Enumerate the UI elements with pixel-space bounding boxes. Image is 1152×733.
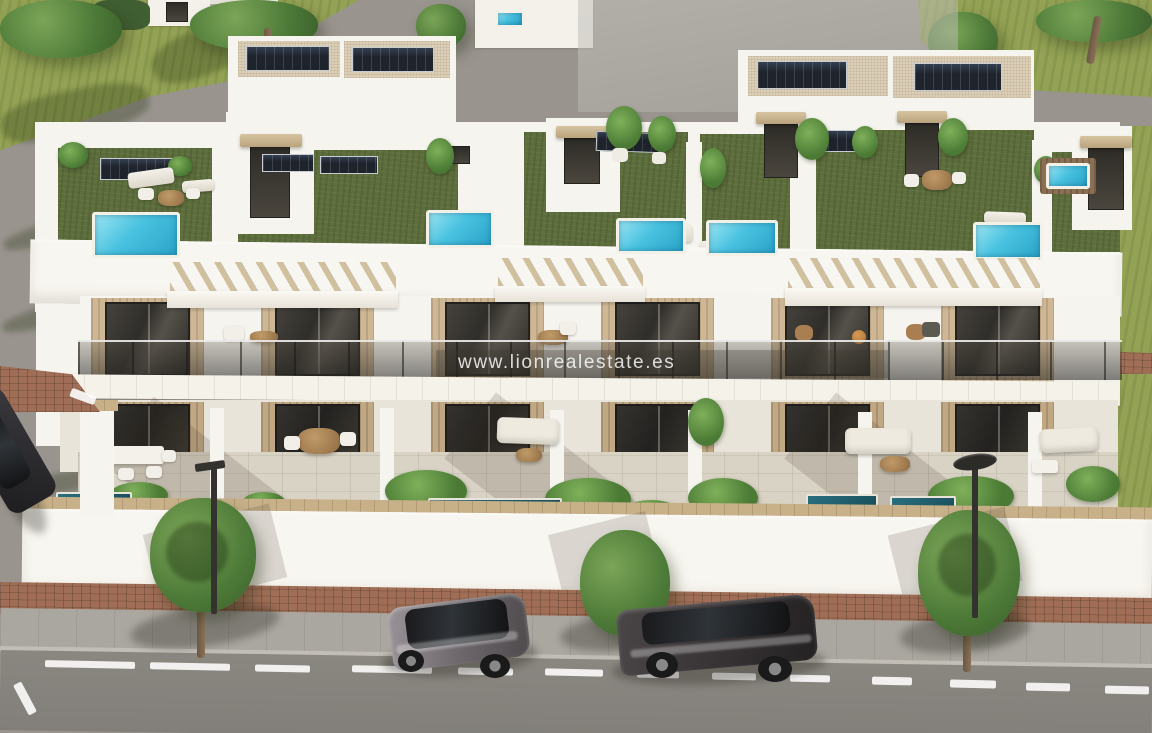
pergola-beam-1 [167, 291, 398, 308]
patio-chair-1 [284, 436, 300, 450]
plant-pot-2 [652, 152, 666, 164]
patio-sofa-2 [845, 428, 911, 454]
car-mid-wheel-1 [398, 650, 424, 672]
roof-plant-7 [795, 118, 829, 160]
patio-table-round [298, 428, 340, 454]
coffee-table-1 [516, 448, 542, 462]
plant-pot-1 [612, 148, 628, 162]
patio-sofa-3 [1039, 426, 1098, 453]
lane-dash-12 [1026, 683, 1070, 692]
solar-panel-a2 [352, 47, 434, 72]
roof-plant-3 [426, 138, 454, 174]
roof-plant-8 [852, 126, 878, 158]
roof-chair-2 [186, 188, 200, 199]
roof-plant-6 [700, 148, 726, 188]
pergola-slats-3 [788, 258, 1040, 292]
lamppost-2 [972, 464, 978, 618]
roof-pool-5 [973, 222, 1043, 260]
villa-door [166, 2, 188, 22]
side-table [1032, 460, 1058, 473]
roof-pool-3 [616, 218, 686, 254]
turf-solar-2 [262, 154, 314, 172]
lane-dash-6 [545, 668, 603, 676]
turf-solar-3 [320, 156, 378, 174]
roof-plant-4 [606, 106, 642, 150]
terrace-palm [688, 398, 724, 446]
roof-pool-1 [92, 212, 180, 258]
roof-door-4 [905, 123, 939, 177]
real-estate-render: www.lionrealestate.es [0, 0, 1152, 733]
hedge-8 [1066, 466, 1120, 502]
car-right-wheel-2 [758, 656, 792, 682]
villa2-pool [495, 10, 525, 28]
dining-chair-4 [162, 450, 176, 462]
dining-chair-3 [146, 466, 162, 478]
roof-door-3 [764, 124, 798, 178]
lane-dash-13 [1105, 686, 1149, 695]
patio-sofa-1 [497, 417, 560, 445]
background-villa-2 [475, 0, 593, 48]
pergola-slats-2 [498, 258, 643, 288]
street-tree-3-shade [938, 534, 996, 596]
lane-dash-10 [872, 677, 912, 686]
roof-chair-1 [138, 188, 154, 200]
roof-plant-1 [58, 142, 88, 168]
corner-pillar [80, 404, 114, 516]
street-tree-1-shade [166, 522, 228, 582]
solar-panel-a1 [246, 46, 330, 71]
pergola-beam-2 [495, 286, 645, 302]
pergola-slats-1 [170, 262, 396, 294]
balcony-chair-1 [224, 326, 244, 341]
pergola-beam-3 [785, 288, 1042, 306]
patio-chair-2 [340, 432, 356, 446]
car-mid-wheel-2 [480, 654, 510, 678]
lane-dash-9 [790, 675, 830, 683]
balcony-chair-3 [922, 322, 940, 337]
lane-dash-11 [950, 680, 996, 689]
roof-door-2 [564, 138, 600, 184]
roof-table-1 [158, 190, 184, 206]
awning-4 [897, 111, 947, 123]
awning-1 [240, 134, 302, 147]
roof-chair-4 [952, 172, 966, 184]
dining-chair-2 [118, 468, 134, 480]
roof-pool-4 [706, 220, 778, 256]
roof-plant-9 [938, 118, 968, 156]
roof-chair-3 [904, 174, 919, 187]
jacuzzi-water [1046, 163, 1090, 189]
lane-dash-3 [255, 664, 310, 672]
watermark-text: www.lionrealestate.es [458, 352, 675, 374]
solar-panel-b1 [757, 61, 847, 89]
balcony-chair-2 [560, 322, 576, 335]
roof-table-2 [922, 170, 952, 190]
lamppost-1 [211, 468, 217, 614]
solar-panel-b2 [914, 63, 1002, 91]
car-right-wheel-1 [646, 652, 678, 678]
awning-5 [1080, 136, 1132, 148]
balcony-rattan-1 [795, 325, 813, 341]
roof-plant-5 [648, 116, 676, 152]
awning-3 [756, 112, 806, 124]
tree-top-left-1 [0, 0, 122, 58]
coffee-table-2 [880, 456, 910, 472]
roof-pool-2 [426, 210, 494, 248]
